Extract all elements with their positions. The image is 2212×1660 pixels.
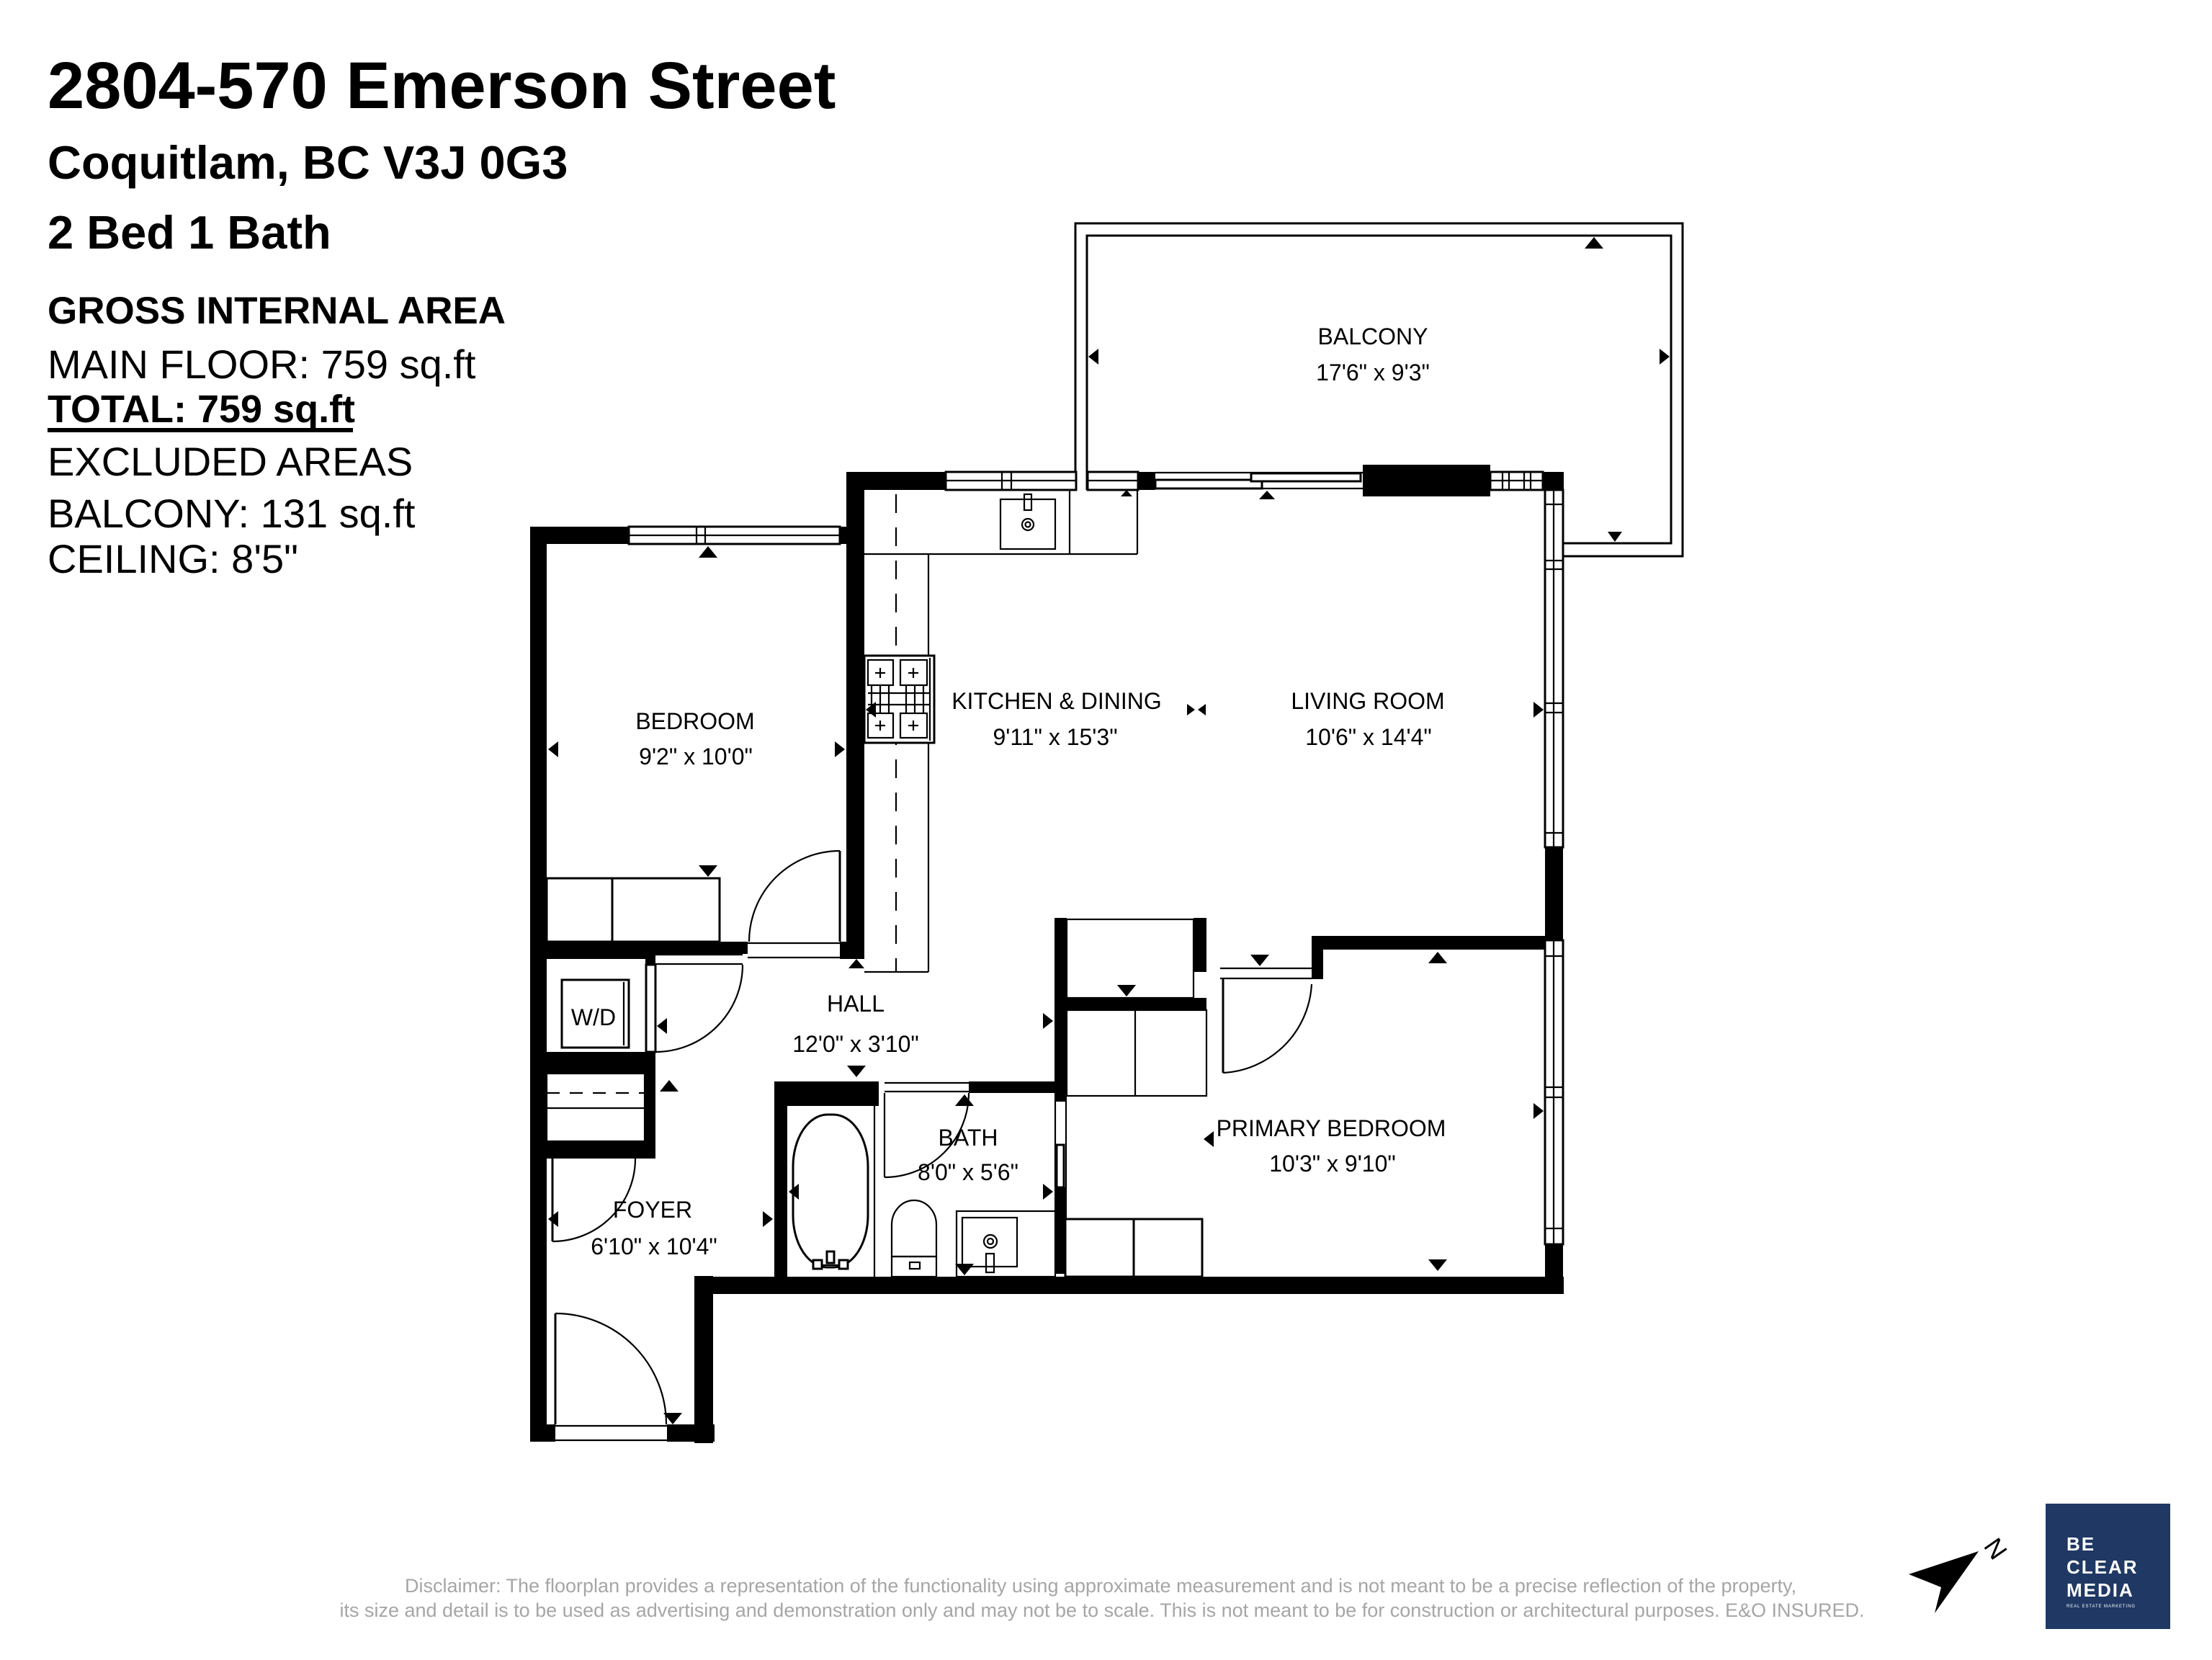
svg-text:FOYER: FOYER <box>613 1197 692 1223</box>
svg-text:17'6" x 9'3": 17'6" x 9'3" <box>1316 360 1430 385</box>
svg-text:HALL: HALL <box>827 991 885 1017</box>
svg-text:10'6" x 14'4": 10'6" x 14'4" <box>1305 724 1432 750</box>
svg-text:10'3" x 9'10": 10'3" x 9'10" <box>1269 1151 1396 1177</box>
svg-text:GROSS INTERNAL AREA: GROSS INTERNAL AREA <box>48 290 506 332</box>
svg-text:Coquitlam, BC V3J 0G3: Coquitlam, BC V3J 0G3 <box>48 136 568 189</box>
svg-text:9'11" x 15'3": 9'11" x 15'3" <box>993 724 1117 750</box>
svg-text:BE: BE <box>2067 1533 2095 1555</box>
svg-text:BEDROOM: BEDROOM <box>635 708 754 734</box>
svg-text:EXCLUDED AREAS: EXCLUDED AREAS <box>48 439 413 484</box>
svg-text:PRIMARY BEDROOM: PRIMARY BEDROOM <box>1217 1115 1446 1141</box>
svg-text:2804-570 Emerson Street: 2804-570 Emerson Street <box>48 49 836 122</box>
svg-text:REAL ESTATE MARKETING: REAL ESTATE MARKETING <box>2067 1605 2136 1609</box>
svg-text:MAIN FLOOR: 759 sq.ft: MAIN FLOOR: 759 sq.ft <box>48 342 476 387</box>
svg-text:2 Bed 1 Bath: 2 Bed 1 Bath <box>48 206 331 259</box>
svg-text:W/D: W/D <box>571 1004 616 1030</box>
svg-text:KITCHEN & DINING: KITCHEN & DINING <box>951 688 1162 714</box>
svg-text:its size and detail is to be u: its size and detail is to be used as adv… <box>339 1599 1864 1621</box>
svg-text:12'0" x 3'10": 12'0" x 3'10" <box>792 1031 919 1057</box>
svg-text:9'2" x 10'0": 9'2" x 10'0" <box>639 744 753 769</box>
svg-text:CLEAR: CLEAR <box>2067 1556 2139 1578</box>
svg-text:BALCONY: 131 sq.ft: BALCONY: 131 sq.ft <box>48 491 416 536</box>
svg-text:BALCONY: BALCONY <box>1318 323 1428 349</box>
svg-text:6'10" x 10'4": 6'10" x 10'4" <box>591 1233 717 1259</box>
svg-text:8'0" x 5'6": 8'0" x 5'6" <box>918 1159 1018 1185</box>
svg-text:MEDIA: MEDIA <box>2067 1579 2134 1601</box>
svg-text:CEILING: 8'5": CEILING: 8'5" <box>48 536 298 581</box>
svg-text:TOTAL: 759 sq.ft: TOTAL: 759 sq.ft <box>48 388 355 431</box>
svg-text:BATH: BATH <box>939 1125 998 1151</box>
svg-text:N: N <box>1978 1532 2012 1565</box>
svg-text:LIVING ROOM: LIVING ROOM <box>1291 688 1444 714</box>
svg-text:Disclaimer: The floorplan prov: Disclaimer: The floorplan provides a rep… <box>405 1575 1796 1597</box>
